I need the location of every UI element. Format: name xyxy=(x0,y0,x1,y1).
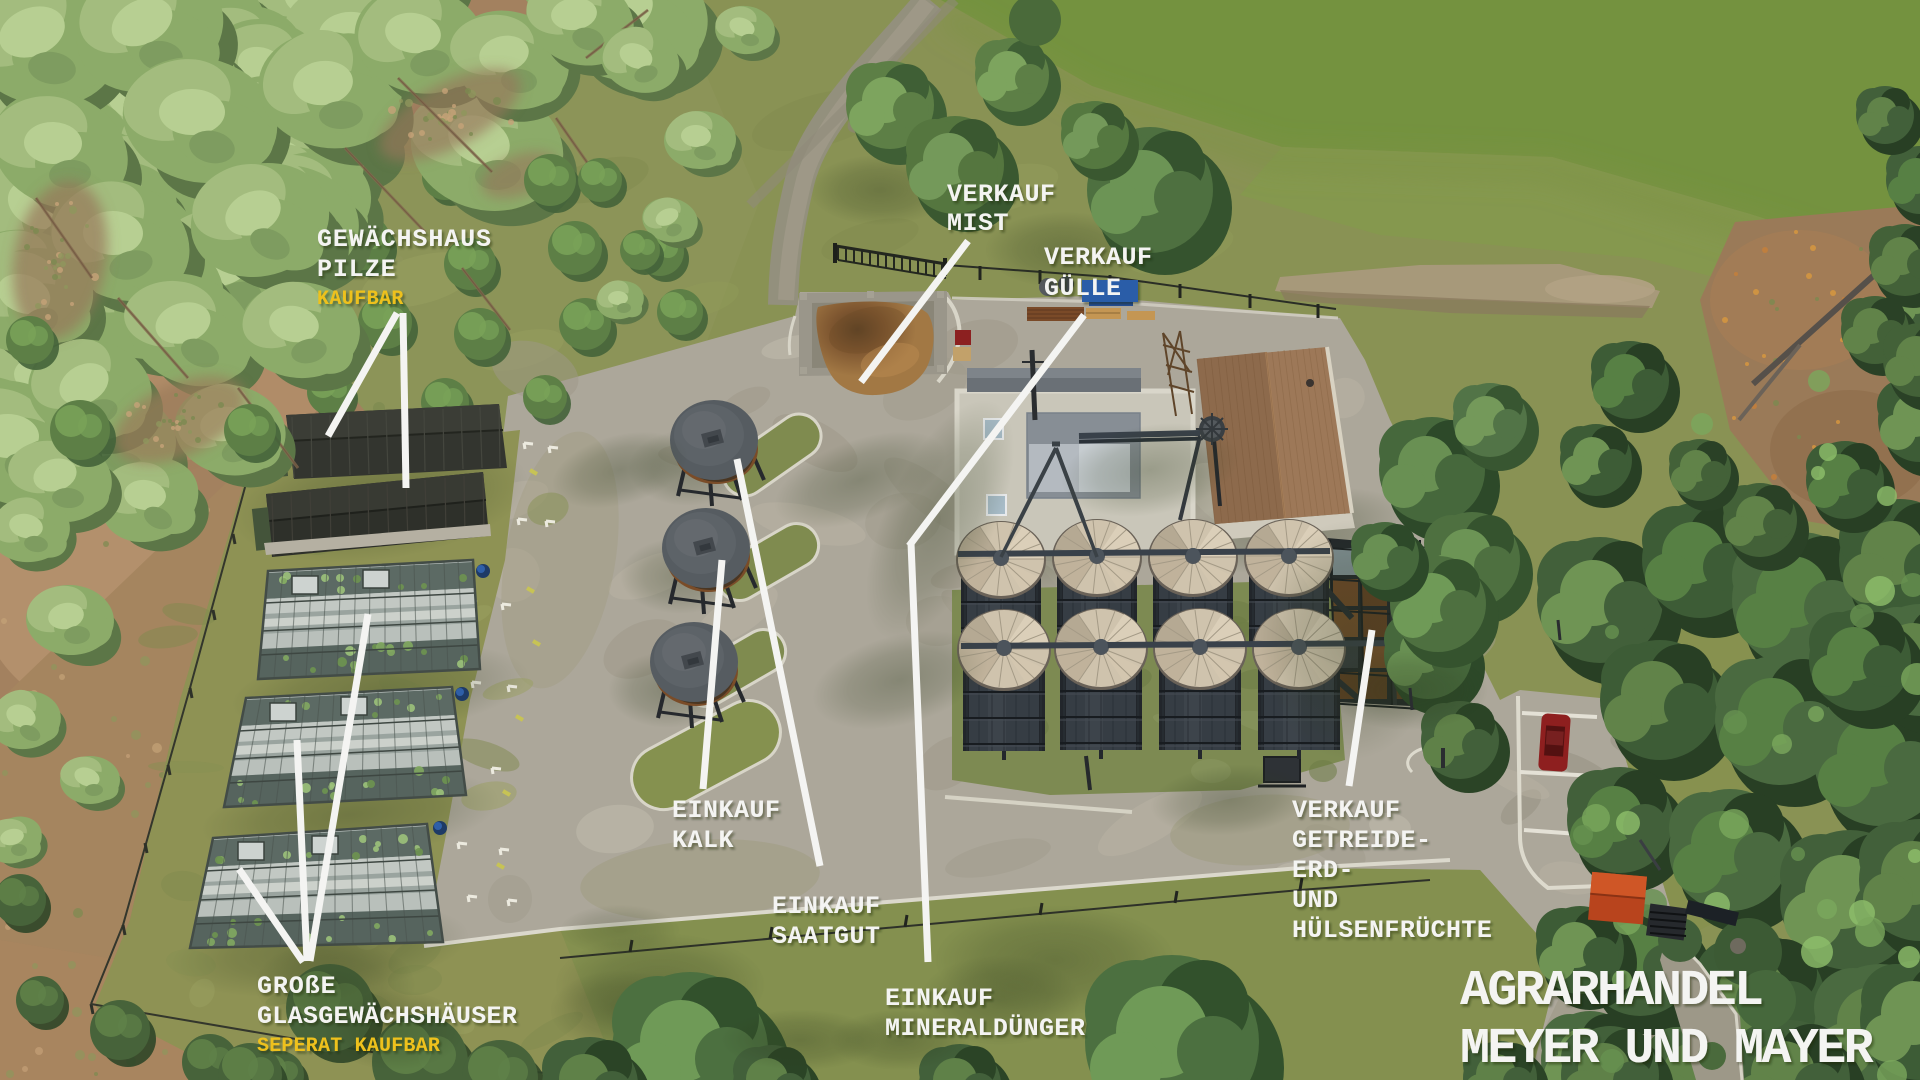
svg-text:GEWÄCHSHAUS: GEWÄCHSHAUS xyxy=(317,225,492,254)
svg-text:PILZE: PILZE xyxy=(317,255,397,284)
svg-text:AGRARHANDEL: AGRARHANDEL xyxy=(1460,963,1762,1020)
svg-text:VERKAUF: VERKAUF xyxy=(1044,243,1153,272)
svg-text:EINKAUF: EINKAUF xyxy=(772,892,881,921)
svg-text:ERD-: ERD- xyxy=(1292,856,1354,885)
svg-text:EINKAUF: EINKAUF xyxy=(885,984,994,1013)
svg-text:MIST: MIST xyxy=(947,209,1009,238)
svg-text:GROßE: GROßE xyxy=(257,972,337,1001)
svg-text:GETREIDE-: GETREIDE- xyxy=(1292,826,1432,855)
svg-text:SAATGUT: SAATGUT xyxy=(772,922,881,951)
svg-text:HÜLSENFRÜCHTE: HÜLSENFRÜCHTE xyxy=(1292,916,1492,945)
svg-text:KAUFBAR: KAUFBAR xyxy=(317,288,404,311)
svg-text:GÜLLE: GÜLLE xyxy=(1044,274,1122,303)
svg-text:KALK: KALK xyxy=(672,826,734,855)
svg-text:EINKAUF: EINKAUF xyxy=(672,796,781,825)
svg-text:VERKAUF: VERKAUF xyxy=(947,180,1056,209)
svg-text:GLASGEWÄCHSHÄUSER: GLASGEWÄCHSHÄUSER xyxy=(257,1002,517,1031)
svg-text:MEYER UND MAYER: MEYER UND MAYER xyxy=(1460,1021,1874,1078)
svg-text:MINERALDÜNGER: MINERALDÜNGER xyxy=(885,1014,1085,1043)
svg-text:VERKAUF: VERKAUF xyxy=(1292,796,1401,825)
svg-text:SEPERAT KAUFBAR: SEPERAT KAUFBAR xyxy=(257,1035,440,1058)
svg-text:UND: UND xyxy=(1292,886,1339,915)
